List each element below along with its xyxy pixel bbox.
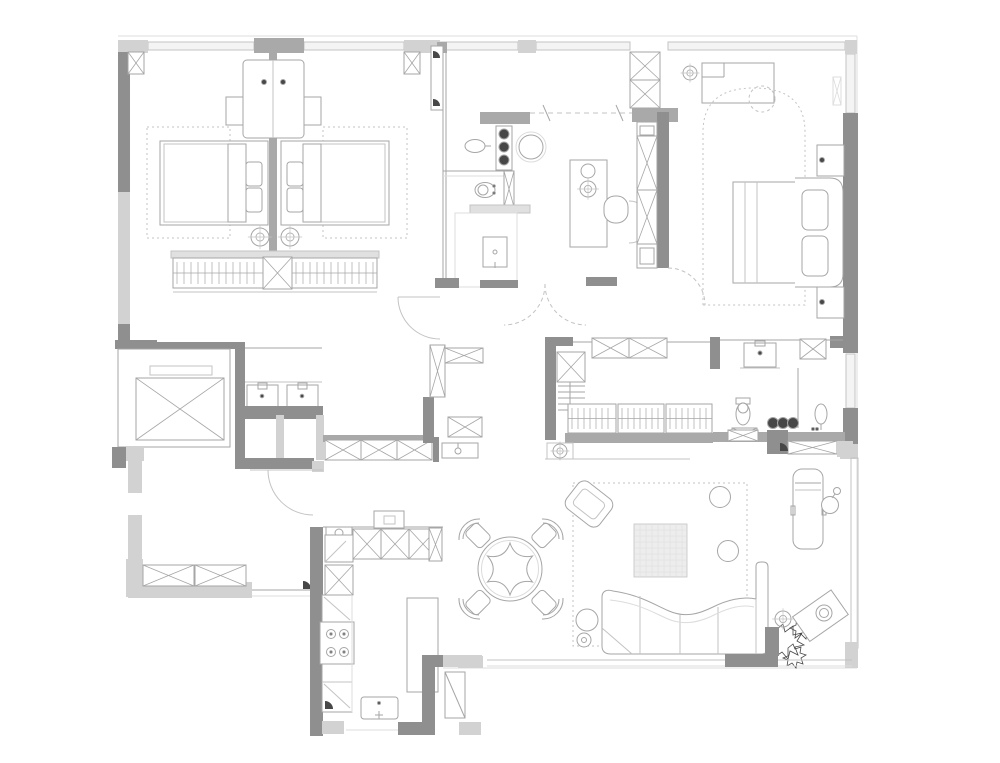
floor-plan-page — [0, 0, 1000, 763]
dining-area — [459, 519, 563, 619]
walk-in-closet — [545, 337, 713, 443]
study-room — [480, 105, 705, 325]
twin-bedroom-wardrobe — [171, 251, 379, 292]
shared-bathroom — [235, 342, 324, 472]
kitchen — [310, 511, 482, 736]
elevator-shaft — [112, 349, 230, 468]
twin-bedroom-right — [278, 127, 407, 249]
entry-hall — [126, 461, 311, 598]
twin-bedroom-dresser — [226, 60, 321, 138]
master-bedroom — [681, 63, 844, 318]
center-bathroom — [431, 46, 546, 288]
floor-plan — [0, 0, 1000, 763]
twin-bedroom-left — [147, 127, 272, 249]
